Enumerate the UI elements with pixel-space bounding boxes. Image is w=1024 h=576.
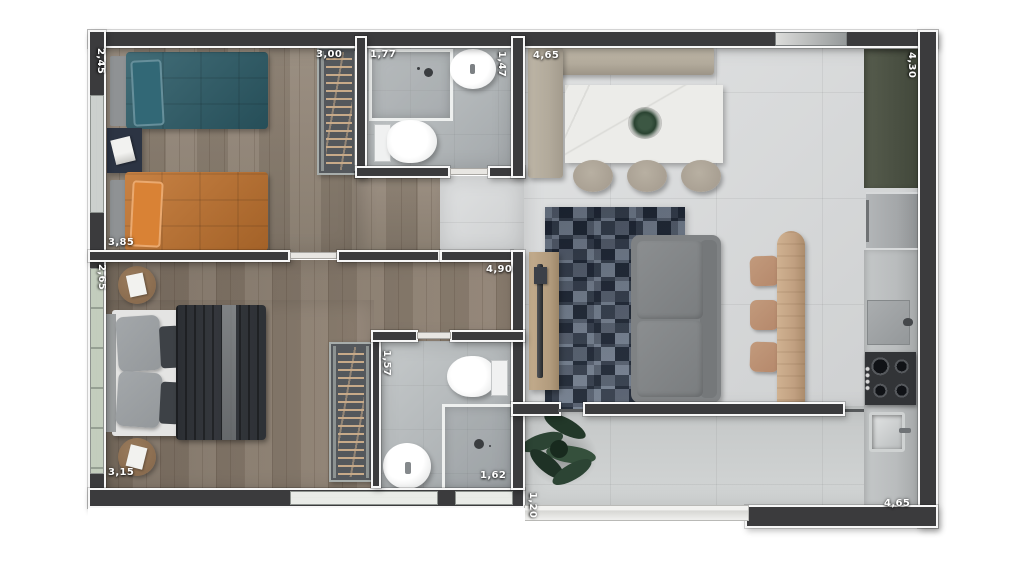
dim-bedroom1-bottom: 3,85 — [108, 238, 134, 248]
dim-terrace-side: 1,20 — [527, 492, 537, 518]
fridge-handle — [866, 200, 869, 242]
toilet-1-bowl — [387, 120, 437, 163]
terrace-railing — [524, 505, 749, 521]
shower-1-head-icon — [424, 68, 433, 77]
wardrobe-hangers — [338, 347, 364, 477]
desk-chair-2 — [750, 300, 779, 330]
dim-bedroom1-top: 3,00 — [316, 50, 342, 60]
entry-door — [775, 32, 847, 46]
tv-console-decor — [534, 267, 547, 284]
dim-bathroom2-shower: 1,62 — [480, 471, 506, 481]
pillow-gray-2 — [115, 371, 163, 429]
wall-bathroom1-bottom-left — [355, 166, 450, 178]
wardrobe-bedroom-2 — [329, 342, 373, 482]
sink-2-faucet-icon — [405, 462, 411, 474]
dim-kitchen-side-bottom: 4,65 — [884, 499, 910, 509]
dim-living-top: 4,65 — [533, 51, 559, 61]
bathroom-2-door-leaf — [417, 332, 451, 339]
dim-bathroom1-side: 1,47 — [496, 51, 506, 77]
desk-chair-3 — [749, 342, 779, 373]
wall-entry-bedroom2 — [440, 250, 513, 262]
shower-2-head-icon — [474, 439, 484, 449]
plant-center — [550, 440, 568, 458]
wall-bedrooms-right — [337, 250, 440, 262]
dining-stool-1 — [573, 160, 613, 192]
wall-bedroom1-bathroom1 — [355, 36, 367, 178]
dim-bedroom2-side-top: 2,65 — [96, 264, 106, 290]
pillow-gray-1 — [115, 315, 163, 373]
window-bathroom-2-bottom — [455, 491, 513, 505]
prep-sink-faucet-icon — [903, 318, 913, 326]
fridge — [866, 192, 918, 250]
window-bedroom-2-bottom — [290, 491, 438, 505]
dim-bathroom1-top: 1,77 — [370, 50, 396, 60]
terrace-plant — [516, 412, 616, 500]
sofa-cushion-2 — [637, 321, 703, 397]
bedroom-2-door-leaf — [290, 252, 337, 259]
wall-bathroom2-top-right — [450, 330, 525, 342]
wall-bathroom1-living — [511, 36, 525, 178]
dining-stool-2 — [627, 160, 667, 192]
sink-1-faucet-icon — [470, 64, 475, 74]
dim-bedroom1-side: 2,45 — [95, 48, 105, 74]
bed-orange-pillow — [129, 180, 163, 248]
kitchen-sink-faucet-icon — [899, 428, 911, 433]
bed-double-headboard — [106, 314, 116, 432]
dining-bench-vertical — [528, 47, 563, 178]
dim-bedroom2-bottom: 3,15 — [108, 468, 134, 478]
wall-right — [918, 30, 938, 528]
bed-teal-pillow — [130, 59, 164, 127]
hallway-floor — [356, 176, 440, 254]
floor-plan: 2,45 3,00 1,77 1,47 4,65 4,30 3,85 2,65 … — [0, 0, 1024, 576]
bed-double-duvet-fold — [222, 305, 236, 440]
window-bedroom-1 — [90, 95, 104, 213]
wardrobe-hangers — [326, 52, 352, 170]
dim-kitchen-side-top: 4,30 — [906, 52, 916, 78]
bathroom-1-door-leaf — [450, 168, 488, 175]
dining-stool-3 — [681, 160, 721, 192]
window-bedroom-2 — [90, 268, 104, 474]
wall-bedroom2-bathroom2 — [371, 340, 381, 488]
cooktop — [865, 352, 916, 405]
bed-double-duvet — [176, 305, 266, 440]
wall-bathroom2-top-left — [371, 330, 418, 342]
toilet-2-tank — [491, 360, 508, 396]
wall-bedrooms-left — [88, 250, 290, 262]
desk-chair-1 — [749, 256, 779, 287]
dim-bedroom2-top: 4,90 — [486, 265, 512, 275]
terrace-sliding-door — [583, 402, 845, 416]
wall-living-left — [511, 250, 525, 490]
table-plant — [628, 107, 662, 139]
entry-floor — [440, 176, 525, 254]
toilet-2-bowl — [447, 356, 495, 397]
dim-bathroom2-side: 1,57 — [381, 350, 391, 376]
desk-table — [777, 231, 805, 407]
page-background — [88, 508, 525, 528]
wall-terrace-stub — [511, 402, 561, 416]
sofa-cushion-1 — [637, 241, 703, 319]
